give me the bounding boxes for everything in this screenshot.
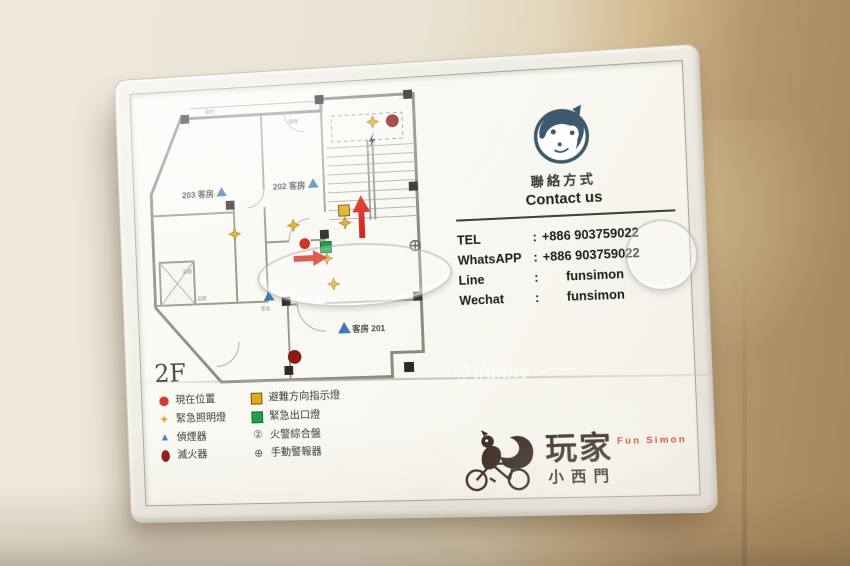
room-202-label: 202 客房 [273,180,306,192]
contact-label: TEL [457,230,528,247]
legend-item-fire-extinguisher: 滅火器 [159,447,228,464]
fire-extinguisher-icon [159,450,172,462]
plan-walls [148,93,424,384]
legend-label: 避難方向指示燈 [268,388,340,406]
contact-label: Line [458,271,529,288]
legend-column-2: 避難方向指示燈 緊急出口燈 ② 火警綜合盤 ⊕ 手動警報器 [250,388,343,462]
contact-row-line: Line : funsimon [458,265,678,288]
door-arcs [207,111,327,366]
squirrel-bicycle-icon [456,429,543,494]
logo-text: 玩家 Fun Simon 小西門 [545,429,689,486]
logo-name-zh: 玩家 [545,431,614,464]
contact-row-wechat: Wechat : funsimon [459,285,679,308]
contact-row-tel: TEL : +886 903759022 [457,224,677,248]
legend-label: 緊急照明燈 [176,410,227,427]
contact-colon: : [530,291,545,306]
escape-direction-light-icon [338,205,349,216]
structure-columns [180,89,425,379]
watermark-text: ifunny [473,362,529,384]
wall-background: 203 客房 202 客房 客房 201 陽台 樓梯 浴廁 浴廁 茶水 2F [0,0,850,566]
legend-section: 現在位置 ✦ 緊急照明燈 ▲ 偵煙器 滅火器 [157,388,343,464]
brand-logo: 玩家 Fun Simon 小西門 [456,425,689,493]
room-201-label: 客房 201 [351,323,386,334]
watermark-swoosh [531,363,579,379]
contact-section: 聯絡方式 Contact us TEL : +886 903759022 Wha… [452,97,680,314]
legend-column-1: 現在位置 ✦ 緊急照明燈 ▲ 偵煙器 滅火器 [157,392,228,464]
logo-name-en: Fun Simon [617,433,687,446]
contact-value: funsimon [544,285,679,305]
contact-rows: TEL : +886 903759022 WhatsAPP : +886 903… [457,224,679,308]
floor-label: 2F [154,358,187,388]
legend-label: 滅火器 [177,447,208,463]
contact-label: Wechat [459,291,530,308]
emergency-exit-light-icon [320,241,331,252]
legend-label: 火警綜合盤 [270,426,322,443]
elevator-shaft [160,261,196,305]
legend-label: 現在位置 [175,392,216,409]
wall-panel-seam [742,260,747,566]
logo-branch-name: 小西門 [546,462,689,487]
contact-divider [456,209,675,221]
evacuation-sign-board: 203 客房 202 客房 客房 201 陽台 樓梯 浴廁 浴廁 茶水 2F [114,43,718,523]
legend-item-exit-light: 緊急出口燈 [251,407,341,425]
contact-colon: : [527,230,542,245]
pantry-label: 茶水 [261,305,271,312]
manual-alarm-icon [410,240,420,250]
stairs-label: 樓梯 [288,118,298,126]
legend-item-emergency-light: ✦ 緊急照明燈 [158,410,227,427]
evacuation-arrow-up [352,195,371,239]
current-position-icon [157,396,170,406]
fire-alarm-panel-icon: ② [252,430,265,440]
floor-plan: 203 客房 202 客房 客房 201 陽台 樓梯 浴廁 浴廁 茶水 2F [138,85,441,395]
legend-label: 手動警報器 [270,445,322,462]
photographer-watermark: ifunny [450,358,579,386]
legend-item-current-position: 現在位置 [157,392,226,409]
hot-air-balloon-icon [450,362,471,387]
current-position-icon [299,238,310,249]
manual-alarm-icon: ⊕ [252,449,265,459]
contact-value: +886 903759022 [542,244,677,264]
legend-item-fire-alarm-panel: ② 火警綜合盤 [251,425,341,443]
contact-value: funsimon [543,265,678,285]
legend-item-smoke-detector: ▲ 偵煙器 [158,429,227,446]
contact-value: +886 903759022 [542,224,677,244]
smoke-detector-icon: ▲ [159,433,172,443]
room-203-label: 203 客房 [182,189,214,201]
contact-label: WhatsAPP [458,251,529,268]
mascot-husky-icon [528,101,594,167]
emergency-light-icon: ✦ [158,415,171,425]
balcony-label: 陽台 [205,108,215,116]
contact-colon: : [528,250,543,265]
bath-label-2: 浴廁 [197,295,207,302]
escape-direction-light-icon [250,392,263,404]
legend-label: 偵煙器 [176,429,207,445]
legend-label: 緊急出口燈 [269,407,321,424]
sign-paper: 203 客房 202 客房 客房 201 陽台 樓梯 浴廁 浴廁 茶水 2F [129,60,700,506]
contact-colon: : [529,270,544,285]
legend-item-direction-light: 避難方向指示燈 [250,388,340,406]
legend-item-manual-alarm: ⊕ 手動警報器 [252,444,342,462]
emergency-exit-light-icon [251,411,264,423]
contact-row-whatsapp: WhatsAPP : +886 903759022 [458,244,678,268]
